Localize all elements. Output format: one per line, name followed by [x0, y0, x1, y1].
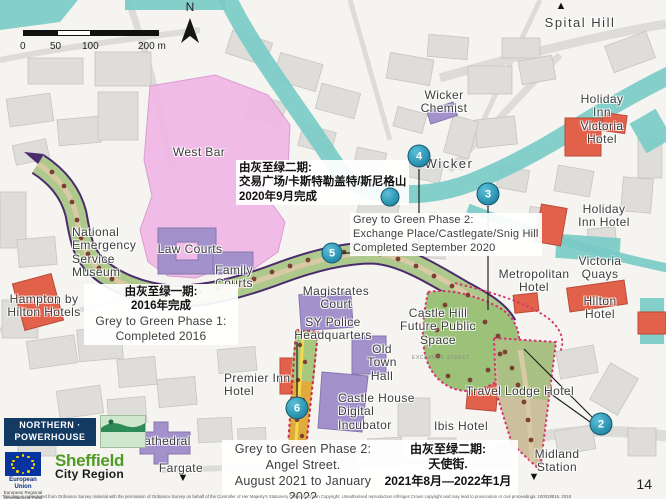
label-wicker-chemist: Wicker Chemist	[421, 89, 468, 116]
route-marker-5: 5	[322, 243, 343, 264]
label-metropolitan-hotel: Metropolitan Hotel	[499, 268, 570, 295]
sheffield-city-council-landscape-icon	[101, 416, 145, 432]
annotation-line: Grey to Green Phase 1:	[87, 314, 235, 329]
metropolitan-hotel-building	[513, 293, 539, 313]
route-marker-3: 3	[477, 183, 500, 206]
label-premier-inn: Premier Inn Hotel	[224, 372, 290, 399]
scale-tick: 50	[50, 41, 61, 52]
annotation-line: 由灰至绿二期:	[239, 161, 406, 175]
annotation-line: Exchange Place/Castlegate/Snig Hill	[353, 228, 539, 242]
scale-segment	[57, 30, 92, 36]
annotation-line: Angel Street.	[224, 458, 382, 474]
annotation-castlegate-en: Grey to Green Phase 2: Exchange Place/Ca…	[350, 213, 542, 256]
label-holiday-inn-hotel: Holiday Inn Hotel	[573, 203, 635, 230]
label-west-bar: West Bar	[173, 146, 225, 159]
route-marker-6: 6	[286, 397, 309, 420]
label-castle-hill: Castle Hill Future Public Space	[400, 307, 476, 347]
label-holiday-inn-victoria: Holiday Inn Victoria Hotel	[570, 93, 634, 147]
label-sy-police-headquarters: SY Police Headquarters	[294, 316, 372, 343]
route-marker-2: 2	[590, 413, 613, 436]
annotation-line: Completed September 2020	[353, 242, 539, 256]
sheffield-city-region-logo: Sheffield City Region	[55, 453, 124, 481]
label-hampton-by-hilton: Hampton by Hilton Hotels	[7, 293, 80, 320]
label-law-courts: Law Courts	[158, 243, 223, 256]
label-wicker: Wicker	[425, 157, 474, 172]
label-midland-station: Midland Station	[535, 448, 580, 475]
annotation-line: 天使街.	[382, 457, 514, 472]
scale-tick: 200 m	[138, 41, 166, 52]
annotation-line: 交易广场/卡斯特勒盖特/斯尼格山	[239, 175, 406, 189]
eu-title: European Union	[3, 477, 43, 490]
label-hilton-hotel: Hilton Hotel	[567, 295, 633, 322]
annotation-angel-street: Grey to Green Phase 2: Angel Street. 由灰至…	[222, 440, 518, 499]
label-ibis-hotel: Ibis Hotel	[434, 420, 488, 433]
annotation-line: Completed 2016	[87, 329, 235, 344]
label-national-emergency-service-museum: National Emergency Service Museum	[72, 226, 136, 280]
annotation-line: 由灰至绿二期:	[382, 442, 514, 457]
annotation-line: Grey to Green Phase 2:	[224, 442, 382, 458]
label-old-town-hall: Old Town Hall	[367, 343, 397, 383]
northern-powerhouse-logo: NORTHERN · POWERHOUSE	[4, 418, 96, 446]
page-number: 14	[636, 476, 652, 492]
scale-segment	[90, 30, 159, 36]
map-page: 0 50 100 200 m N Spital Hill Wicker Chem…	[0, 0, 666, 499]
label-castle-house: Castle House Digital Incubator	[338, 392, 415, 432]
annotation-phase1: 由灰至绿一期: 2016年完成 Grey to Green Phase 1: C…	[84, 284, 238, 345]
eu-logo: European Union European Regional Develop…	[3, 452, 43, 499]
label-exchange-street: EXCHANGE STREET	[412, 356, 470, 362]
spital-hill-triangle-icon: ▲	[556, 0, 567, 12]
route-marker-1	[381, 188, 400, 207]
annotation-line: Grey to Green Phase 2:	[353, 214, 539, 228]
route-marker-4: 4	[408, 145, 431, 168]
sheffield-city-council-logo: Sheffield City Council	[100, 415, 146, 448]
fargate-triangle-icon: ▼	[178, 472, 189, 484]
eu-flag-icon	[5, 452, 41, 476]
annotation-line: 2016年完成	[87, 299, 235, 313]
label-spital-hill: Spital Hill	[545, 16, 616, 31]
label-travel-lodge: Travel Lodge Hotel	[466, 385, 574, 398]
label-magistrates-court: Magistrates Court	[303, 285, 369, 312]
scr-city-region-text: City Region	[55, 469, 124, 480]
annotation-line: 由灰至绿一期:	[87, 285, 235, 299]
north-label: N	[186, 0, 195, 14]
scale-segment	[23, 30, 59, 36]
scale-tick: 100	[82, 41, 99, 52]
midland-triangle-icon: ▼	[529, 471, 540, 483]
label-victoria-quays: Victoria Quays	[567, 255, 633, 282]
scale-tick: 0	[20, 41, 26, 52]
os-copyright-text: This map is reproduced from Ordnance Sur…	[2, 494, 664, 499]
